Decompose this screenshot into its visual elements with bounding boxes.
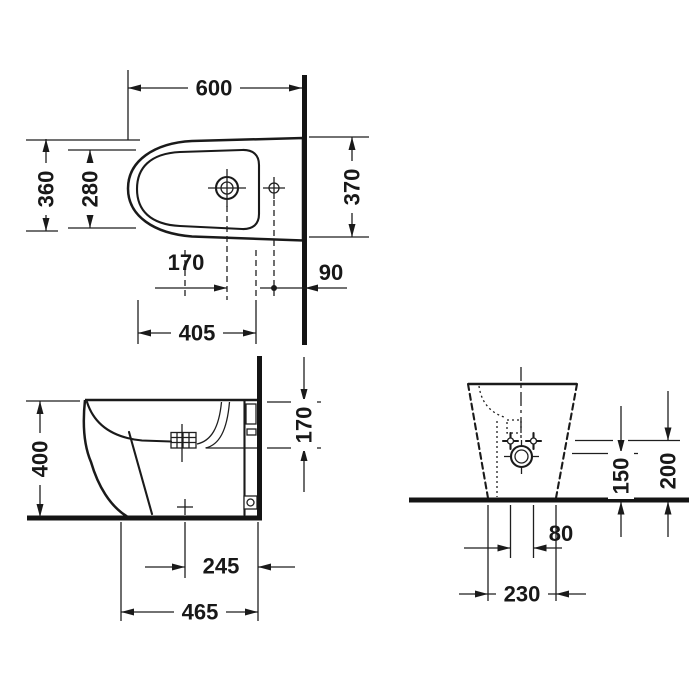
dim-label-400: 400 xyxy=(28,441,53,478)
dim-label-360: 360 xyxy=(34,171,59,208)
dim-label-370: 370 xyxy=(340,169,365,206)
drawing-canvas: 600 360 280 xyxy=(0,0,700,700)
arrowhead xyxy=(138,330,151,337)
plan-view: 600 360 280 xyxy=(26,70,369,346)
arrowhead xyxy=(214,285,227,292)
arrowhead xyxy=(349,137,356,150)
bidet-side-body-fill xyxy=(84,400,259,517)
dim-label-170-plan: 170 xyxy=(168,250,205,275)
arrowhead xyxy=(289,85,302,92)
dim-label-245: 245 xyxy=(203,554,240,579)
arrowhead xyxy=(534,545,547,552)
dim-label-280: 280 xyxy=(78,171,103,208)
arrowhead xyxy=(618,502,625,515)
dim-label-80: 80 xyxy=(549,521,573,546)
arrowhead xyxy=(556,591,569,598)
arrowhead xyxy=(43,139,50,152)
dim-outlet-height: 150 xyxy=(572,406,638,537)
arrowhead xyxy=(37,401,44,414)
dim-label-405: 405 xyxy=(179,321,216,346)
arrowhead xyxy=(37,504,44,517)
fixing-screw-box xyxy=(244,496,257,509)
dim-label-600: 600 xyxy=(196,76,233,101)
arrowhead xyxy=(87,215,94,228)
fixing-bracket-rect xyxy=(246,404,256,424)
arrowhead xyxy=(258,564,271,571)
arrowhead xyxy=(243,330,256,337)
outlet-outer-circle xyxy=(511,446,532,467)
fixing-cross-circle xyxy=(531,438,537,444)
arrowhead xyxy=(128,85,141,92)
dim-height: 400 xyxy=(26,401,80,517)
dim-label-465: 465 xyxy=(182,600,219,625)
arrowhead xyxy=(349,224,356,237)
dim-overall-depth: 600 xyxy=(128,70,302,140)
rear-view: 150 200 80 xyxy=(409,367,689,607)
arrowhead xyxy=(43,218,50,231)
dim-bowl-width: 280 xyxy=(68,150,136,228)
dim-wall-width: 370 xyxy=(309,137,369,237)
arrowhead xyxy=(498,545,511,552)
arrowhead xyxy=(665,428,672,441)
arrowhead xyxy=(475,591,488,598)
side-view: 400 170 245 xyxy=(26,356,321,625)
arrowhead xyxy=(245,609,258,616)
technical-drawing: 600 360 280 xyxy=(0,0,700,700)
arrowhead xyxy=(121,609,134,616)
arrowhead xyxy=(665,502,672,515)
dim-label-150: 150 xyxy=(609,458,634,495)
dim-label-90: 90 xyxy=(319,260,343,285)
dim-label-230: 230 xyxy=(504,582,541,607)
dim-base-width: 230 xyxy=(459,582,586,607)
dim-label-200: 200 xyxy=(656,453,681,490)
fixing-cross-circle xyxy=(508,438,514,444)
arrowhead xyxy=(87,150,94,163)
dim-dot xyxy=(271,285,277,291)
dim-rim-to-inlet: 170 xyxy=(267,357,321,492)
arrowhead xyxy=(172,564,185,571)
dim-label-170-side: 170 xyxy=(292,407,317,444)
